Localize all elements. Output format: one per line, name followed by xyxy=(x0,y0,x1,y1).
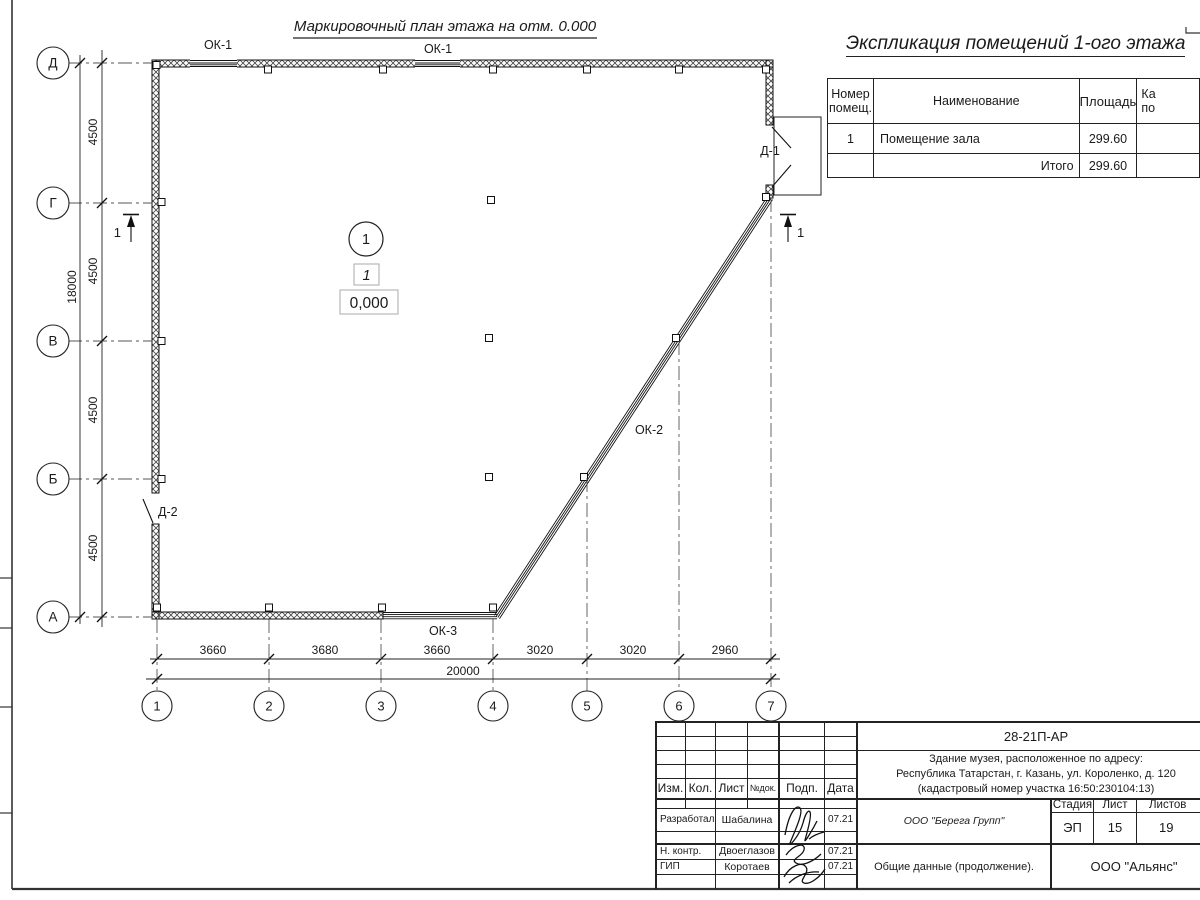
vertical-dimension-labels: 4500 4500 4500 4500 18000 xyxy=(65,118,100,561)
role-developer: Разработал xyxy=(660,808,715,831)
col-header-area: Площадь xyxy=(1079,79,1137,124)
section-mark-right: 1 xyxy=(780,215,804,243)
total-category-cell xyxy=(1137,154,1200,178)
dim-4500-3: 4500 xyxy=(86,396,100,423)
total-label-cell: Итого xyxy=(874,154,1080,178)
axis-label-v: В xyxy=(48,334,57,349)
col-izm: Изм. xyxy=(656,778,685,798)
section-number-right: 1 xyxy=(797,225,804,240)
tag-ok1-left: ОК-1 xyxy=(204,38,232,52)
date-developer: 07.21 xyxy=(825,808,856,831)
axis-label-5: 5 xyxy=(583,699,590,714)
designer-company: ООО "Берега Групп" xyxy=(858,800,1050,842)
project-address-line3: (кадастровый номер участка 16:50:230104:… xyxy=(858,782,1200,797)
col-data: Дата xyxy=(825,778,856,798)
col-podp: Подп. xyxy=(780,778,824,798)
horizontal-dimension-labels: 3660 3680 3660 3020 3020 2960 20000 xyxy=(200,643,739,678)
section-number-left: 1 xyxy=(114,225,121,240)
contractor-company: ООО "Альянс" xyxy=(1052,845,1200,888)
axis-label-2: 2 xyxy=(265,699,272,714)
door-leaves xyxy=(143,127,791,523)
room-name-cell: Помещение зала xyxy=(874,124,1080,154)
table-row: 1 Помещение зала 299.60 xyxy=(828,124,1200,154)
window-ok2-diagonal xyxy=(495,196,773,618)
name-gip: Коротаев xyxy=(716,859,778,874)
col-list: Лист xyxy=(716,778,747,798)
axis-label-1: 1 xyxy=(153,699,160,714)
role-gip: ГИП xyxy=(660,859,715,874)
axis-label-7: 7 xyxy=(767,699,774,714)
col-ndoc: №док. xyxy=(748,778,778,798)
axis-label-a: А xyxy=(48,610,57,625)
dim-3020-1: 3020 xyxy=(527,643,554,657)
project-address: Здание музея, расположенное по адресу: Р… xyxy=(858,752,1200,797)
dimension-ticks xyxy=(75,58,776,684)
doc-number: 28-21П-АР xyxy=(858,723,1200,750)
date-ncontrol: 07.21 xyxy=(825,843,856,859)
sheet-label: Лист xyxy=(1094,798,1136,812)
col-kol: Кол. xyxy=(686,778,715,798)
stage-value: ЭП xyxy=(1052,813,1093,842)
tag-d1: Д-1 xyxy=(760,144,780,158)
dim-3020-2: 3020 xyxy=(620,643,647,657)
explication-header-row: Номер помещ. Наименование Площадь Ка по xyxy=(828,79,1200,124)
axis-label-g: Г xyxy=(49,196,57,211)
dim-4500-2: 4500 xyxy=(86,257,100,284)
col-header-number: Номер помещ. xyxy=(828,79,874,124)
col-header-number-line2: помещ. xyxy=(828,101,873,115)
axis-label-4: 4 xyxy=(489,699,496,714)
stage-label: Стадия xyxy=(1052,798,1093,812)
dim-20000: 20000 xyxy=(446,664,480,678)
axis-label-b: Б xyxy=(49,472,58,487)
dim-3660-1: 3660 xyxy=(200,643,227,657)
plan-title: Маркировочный план этажа на отм. 0.000 xyxy=(294,18,597,35)
dim-3680: 3680 xyxy=(312,643,339,657)
name-ncontrol: Двоеглазов xyxy=(716,843,778,859)
room-tag: 1 1 0,000 xyxy=(340,222,398,314)
sheets-label: Листов xyxy=(1137,798,1200,812)
col-header-number-line1: Номер xyxy=(828,87,873,101)
tag-ok3: ОК-3 xyxy=(429,624,457,638)
room-type-mark: 1 xyxy=(362,268,370,284)
room-number-cell: 1 xyxy=(828,124,874,154)
explication-table: Номер помещ. Наименование Площадь Ка по … xyxy=(827,78,1200,178)
total-empty-cell xyxy=(828,154,874,178)
axis-label-6: 6 xyxy=(675,699,682,714)
total-row: Итого 299.60 xyxy=(828,154,1200,178)
project-address-line2: Республика Татарстан, г. Казань, ул. Кор… xyxy=(858,767,1200,782)
dimension-lines xyxy=(80,50,780,679)
axis-label-3: 3 xyxy=(377,699,384,714)
signature-gip xyxy=(781,841,827,887)
room-number: 1 xyxy=(362,232,370,248)
axis-label-d: Д xyxy=(48,56,57,71)
sheet-value: 15 xyxy=(1094,813,1136,842)
col-axis-bubbles xyxy=(142,691,786,721)
col-header-category-line1: Ка xyxy=(1141,87,1199,101)
column-markers xyxy=(153,62,770,612)
drawing-sheet: { "drawing": { "plan_title": "Маркировоч… xyxy=(0,0,1200,900)
dim-3660-2: 3660 xyxy=(424,643,451,657)
axis-lines xyxy=(68,63,771,691)
row-axis-letters: Д Г В Б А xyxy=(48,56,57,625)
section-mark-left: 1 xyxy=(114,215,139,243)
project-address-line1: Здание музея, расположенное по адресу: xyxy=(858,752,1200,767)
dim-2960: 2960 xyxy=(712,643,739,657)
elevation-mark: 0,000 xyxy=(350,295,389,312)
col-header-name: Наименование xyxy=(874,79,1080,124)
window-ok3 xyxy=(383,613,497,619)
dim-4500-4: 4500 xyxy=(86,534,100,561)
room-area-cell: 299.60 xyxy=(1079,124,1137,154)
tag-ok2: ОК-2 xyxy=(635,423,663,437)
doc-title: Общие данные (продолжение). xyxy=(858,845,1050,888)
col-axis-numbers: 1 2 3 4 5 6 7 xyxy=(153,699,774,714)
explication-title: Экспликация помещений 1-ого этажа xyxy=(846,33,1185,57)
role-ncontrol: Н. контр. xyxy=(660,843,715,859)
total-area-cell: 299.60 xyxy=(1079,154,1137,178)
dim-18000: 18000 xyxy=(65,270,79,304)
col-header-category: Ка по xyxy=(1137,79,1200,124)
sheets-value: 19 xyxy=(1137,813,1200,842)
porch-outline xyxy=(774,117,821,195)
tag-ok1-right: ОК-1 xyxy=(424,42,452,56)
opening-tags: ОК-1 ОК-1 ОК-2 ОК-3 Д-1 Д-2 xyxy=(158,38,780,638)
dim-4500-1: 4500 xyxy=(86,118,100,145)
name-developer: Шабалина xyxy=(716,808,778,831)
room-category-cell xyxy=(1137,124,1200,154)
date-gip: 07.21 xyxy=(825,859,856,874)
tag-d2: Д-2 xyxy=(158,505,178,519)
col-header-category-line2: по xyxy=(1141,101,1199,115)
